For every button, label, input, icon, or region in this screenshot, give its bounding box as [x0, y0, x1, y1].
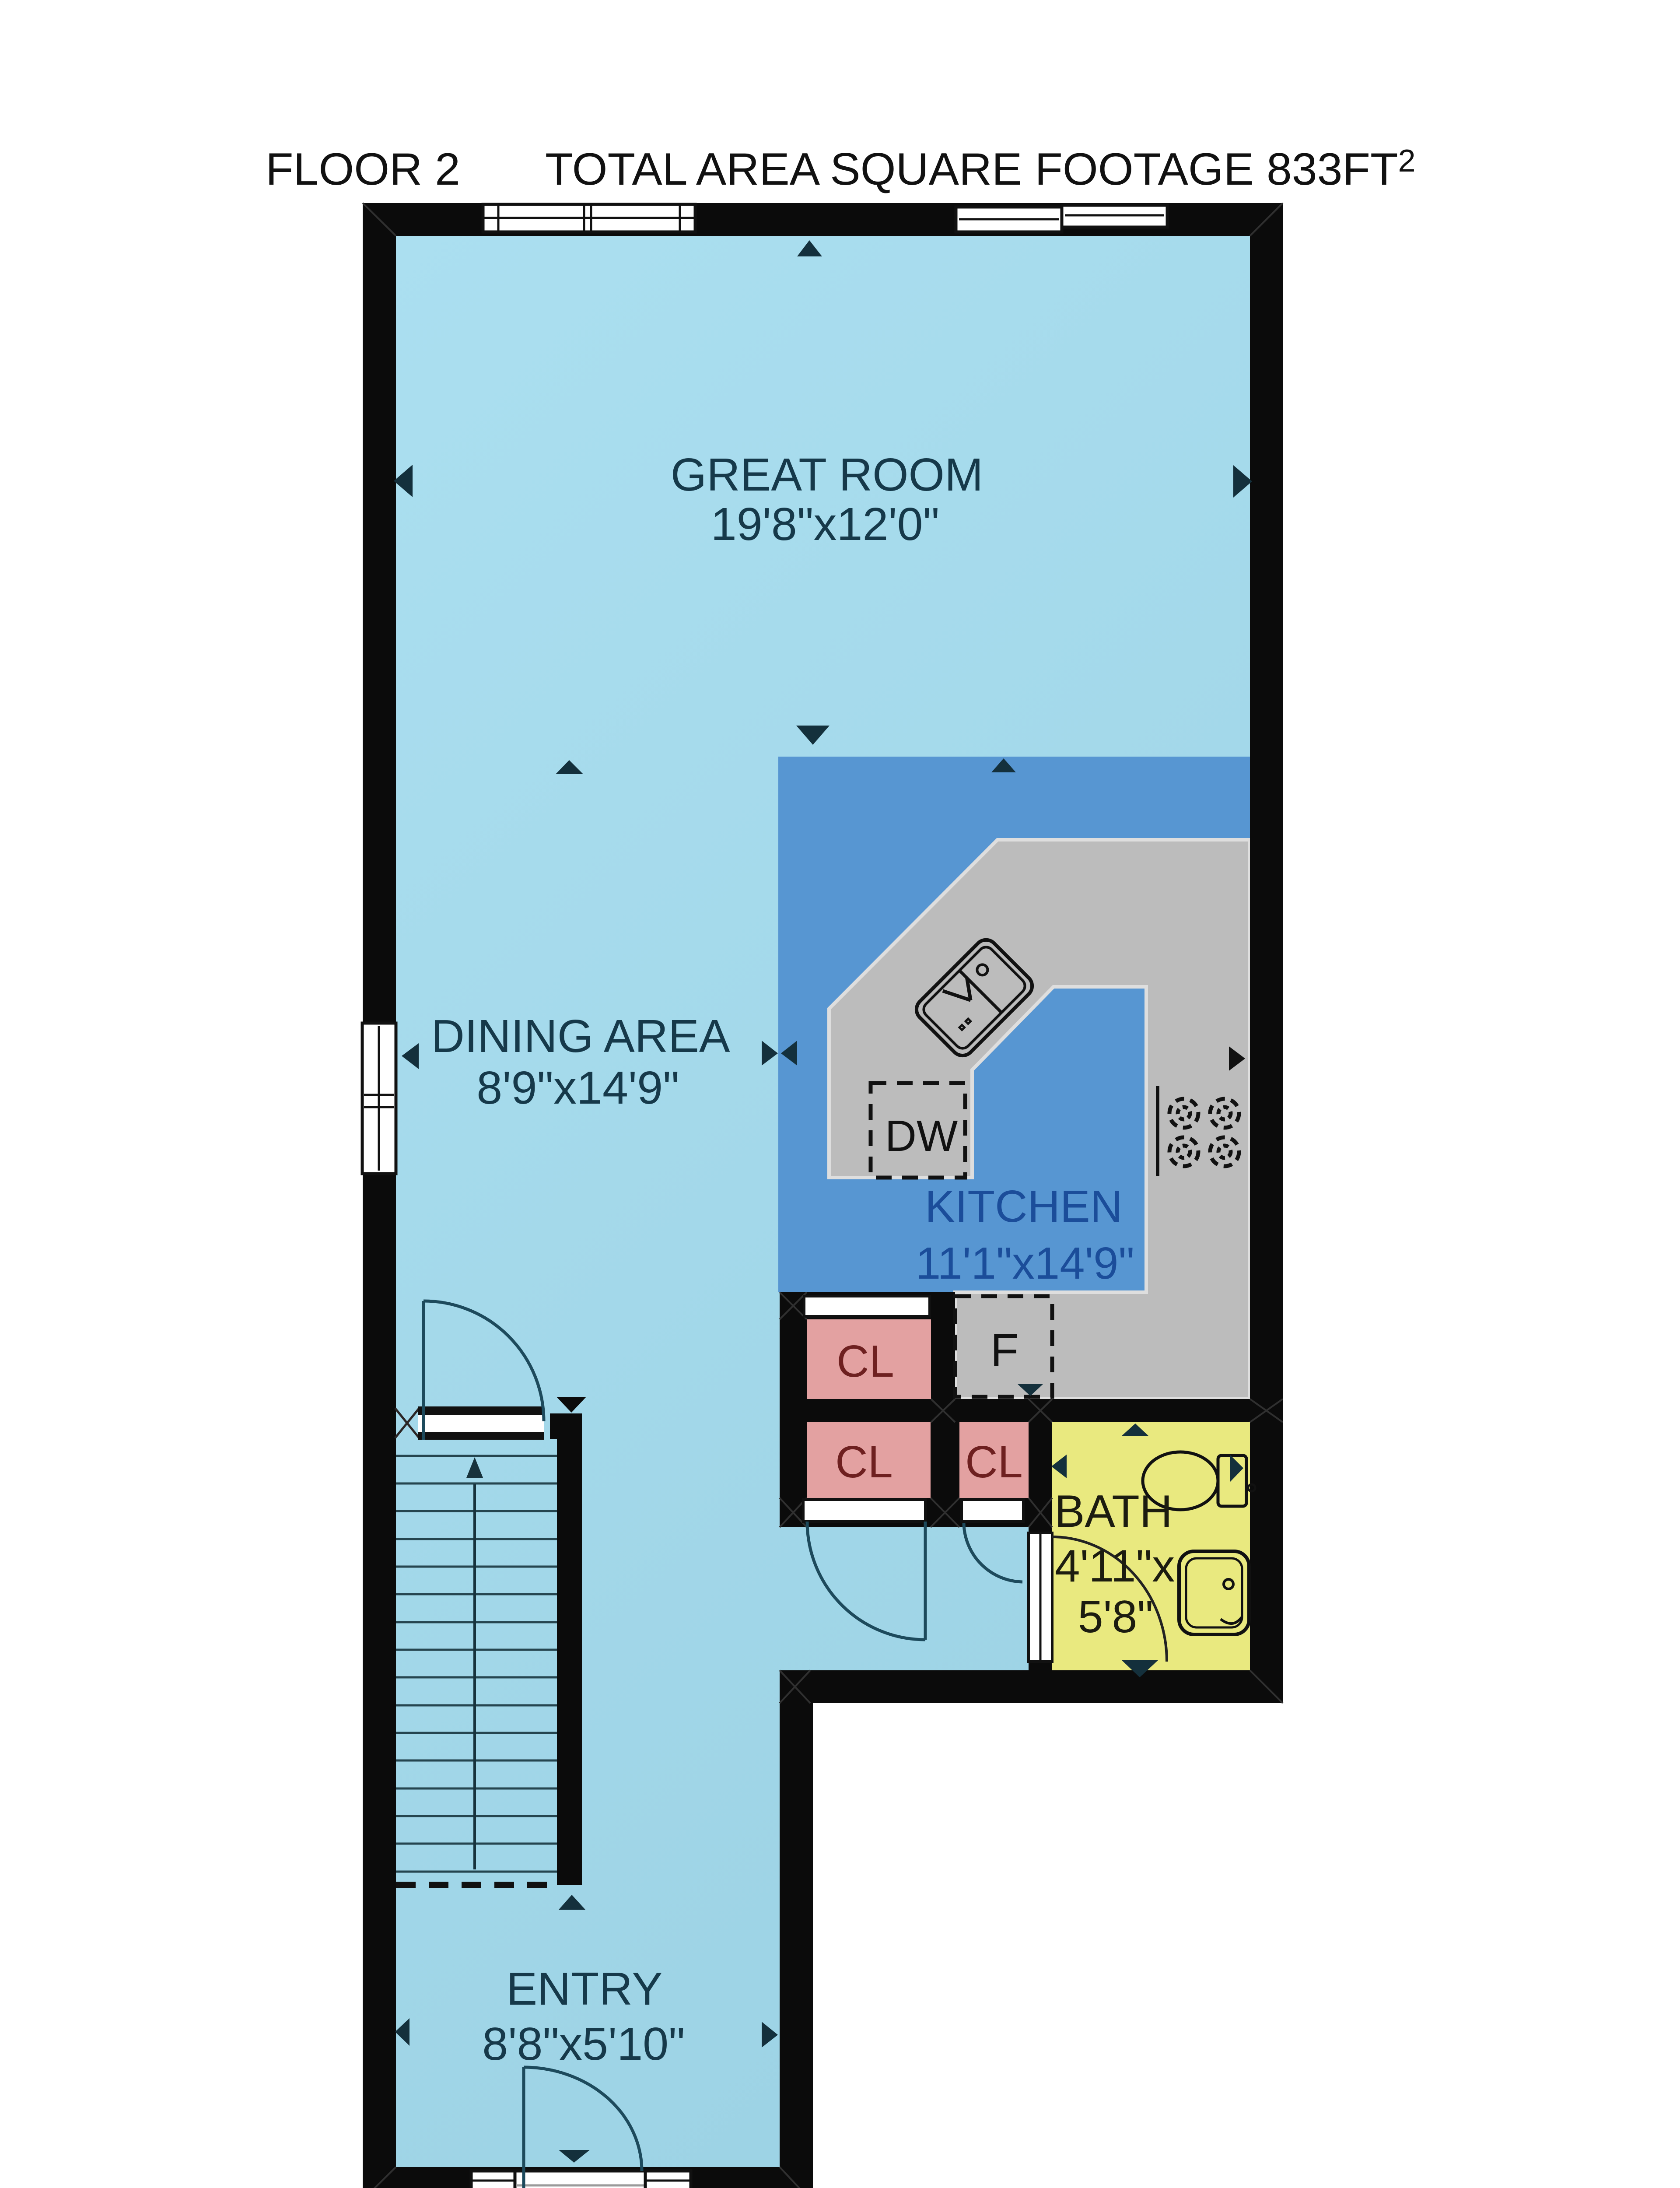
svg-text:ENTRY: ENTRY [506, 1963, 662, 2015]
svg-text:8'8"x5'10": 8'8"x5'10" [482, 2018, 685, 2070]
svg-text:KITCHEN: KITCHEN [925, 1181, 1123, 1231]
svg-text:CL: CL [836, 1336, 894, 1386]
svg-text:BATH: BATH [1054, 1486, 1172, 1537]
svg-text:CL: CL [835, 1437, 893, 1487]
svg-text:4'11"x: 4'11"x [1055, 1541, 1175, 1592]
svg-text:TOTAL AREA SQUARE FOOTAGE 833F: TOTAL AREA SQUARE FOOTAGE 833FT2 [545, 144, 1416, 195]
svg-text:19'8"x12'0": 19'8"x12'0" [711, 498, 939, 550]
svg-text:DINING AREA: DINING AREA [431, 1010, 730, 1062]
svg-text:FLOOR 2: FLOOR 2 [266, 144, 460, 195]
svg-text:5'8": 5'8" [1078, 1592, 1153, 1642]
svg-text:GREAT ROOM: GREAT ROOM [671, 449, 983, 501]
svg-text:F: F [990, 1325, 1019, 1376]
svg-text:8'9"x14'9": 8'9"x14'9" [476, 1062, 679, 1114]
svg-text:DW: DW [885, 1112, 958, 1161]
svg-text:CL: CL [965, 1437, 1023, 1487]
svg-text:11'1"x14'9": 11'1"x14'9" [916, 1238, 1134, 1288]
